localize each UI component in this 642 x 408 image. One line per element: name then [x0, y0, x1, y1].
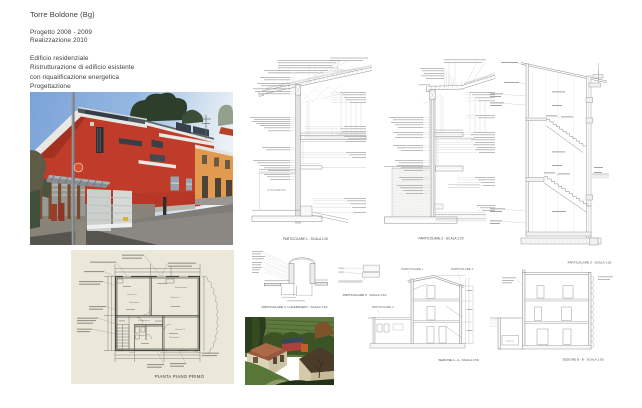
svg-text:Pavimento: Pavimento	[129, 301, 140, 304]
svg-text:SEZIONE B - B - SCALA 1:50: SEZIONE B - B - SCALA 1:50	[563, 358, 604, 362]
svg-text:Camera 3: Camera 3	[175, 328, 185, 331]
svg-text:Pavimento: Pavimento	[169, 336, 180, 339]
svg-text:PARTICOLARE 4. LUCERNARIO - SC: PARTICOLARE 4. LUCERNARIO - SCALA 1:10	[262, 305, 328, 309]
svg-text:Camera 1: Camera 1	[170, 296, 180, 299]
svg-text:AUTORIMESSA: AUTORIMESSA	[267, 188, 286, 192]
svg-text:PARTICOLARE 1: PARTICOLARE 1	[401, 267, 423, 271]
svg-text:PARTICOLARE 4: PARTICOLARE 4	[372, 305, 394, 309]
svg-text:Interrato: Interrato	[506, 340, 514, 343]
svg-text:SEZIONE A - A - SCALA 1:50: SEZIONE A - A - SCALA 1:50	[438, 358, 479, 362]
svg-text:PARTICOLARE 2 - SCALA 1:20: PARTICOLARE 2 - SCALA 1:20	[418, 237, 463, 241]
svg-text:PIANTA PIANO PRIMO: PIANTA PIANO PRIMO	[155, 374, 205, 379]
svg-text:Camera 2: Camera 2	[127, 293, 137, 296]
svg-text:Demolizione: Demolizione	[175, 287, 188, 289]
svg-text:Disimpegno: Disimpegno	[138, 320, 150, 322]
svg-text:PARTICOLARE 1 - SCALA 1:20: PARTICOLARE 1 - SCALA 1:20	[283, 237, 328, 241]
svg-text:Bagno: Bagno	[139, 335, 146, 337]
svg-text:PARTICOLARE 3: PARTICOLARE 3	[451, 267, 473, 271]
